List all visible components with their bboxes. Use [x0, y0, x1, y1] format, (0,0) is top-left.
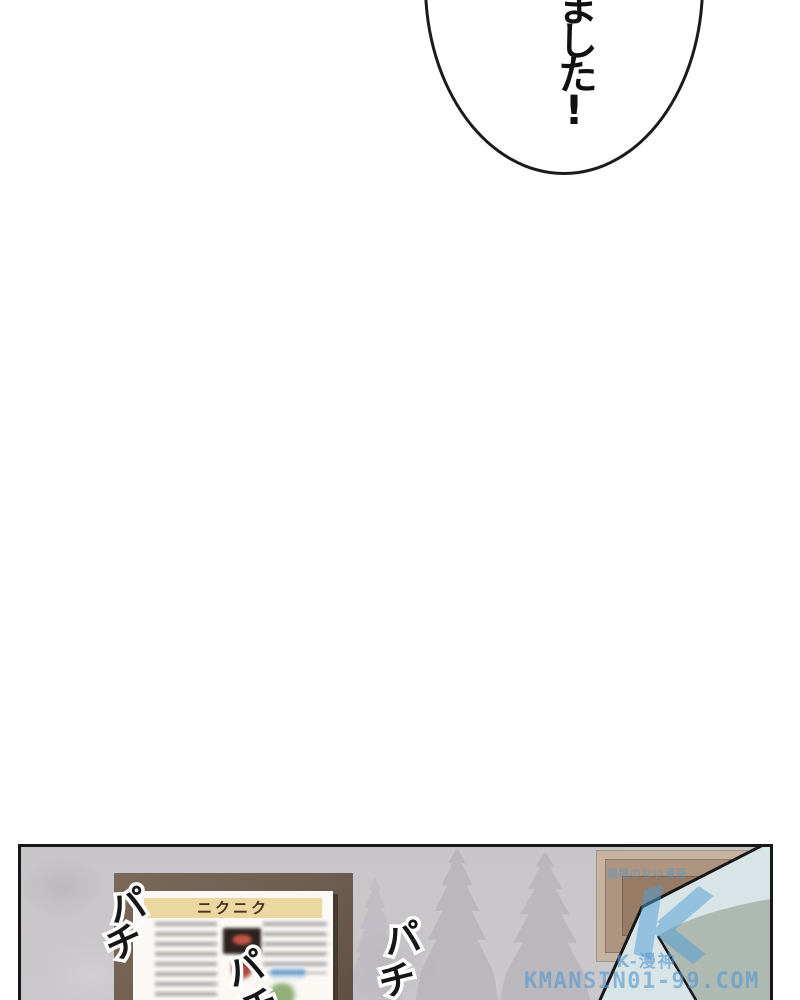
sfx-pachi-char: パ	[381, 918, 424, 961]
speech-bubble-text: ました!	[545, 0, 603, 216]
comic-panel: ニクニク パ チ パ チ パ チ	[18, 844, 773, 1000]
